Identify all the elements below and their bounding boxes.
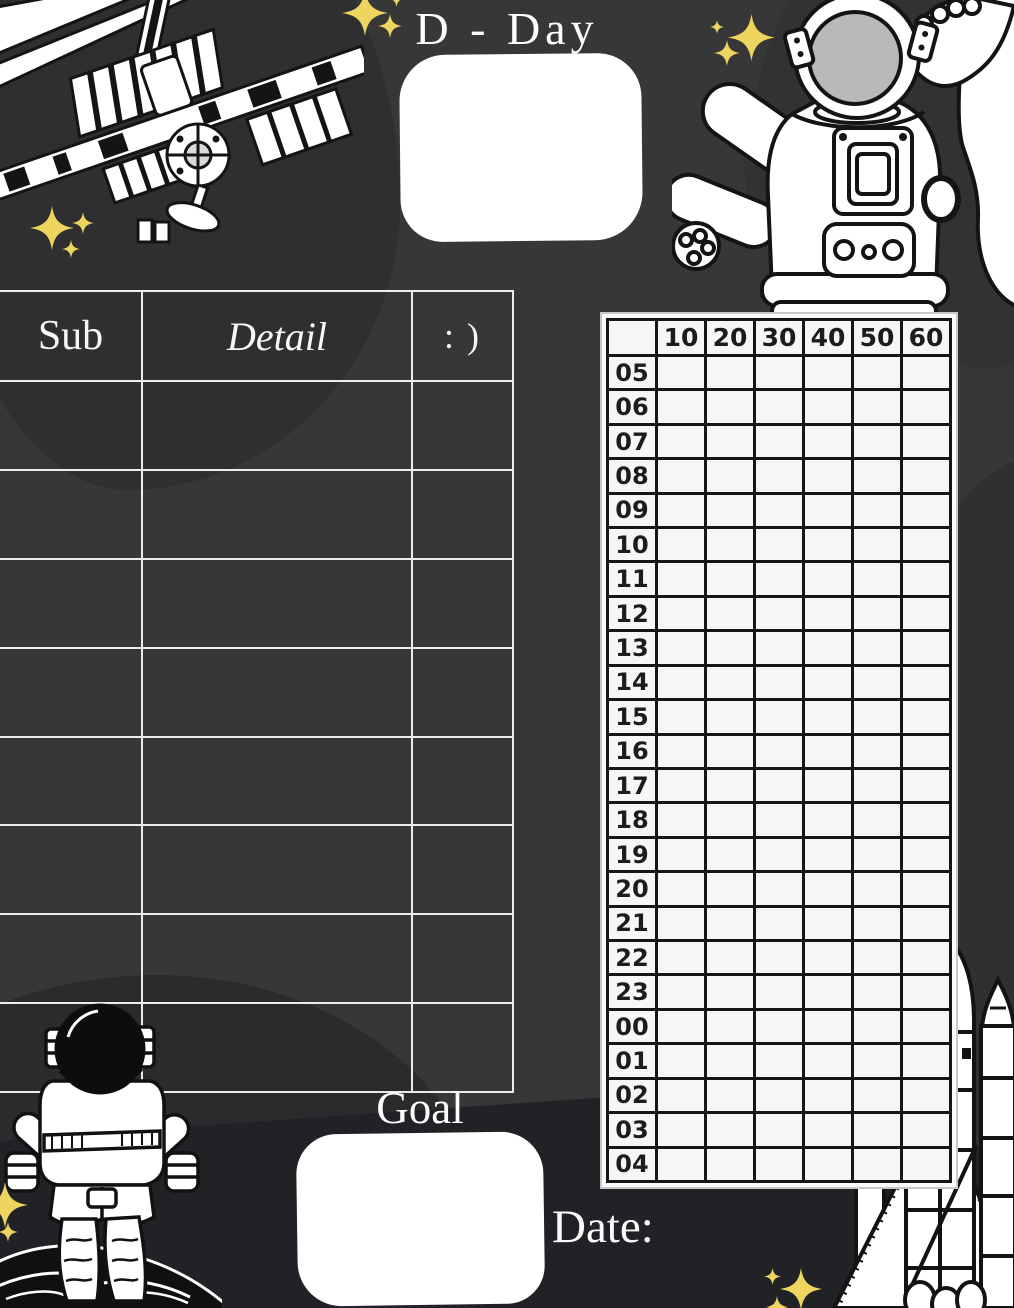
subject-table-cell[interactable] [0,649,143,738]
time-grid-cell[interactable] [658,1114,704,1145]
time-grid-cell[interactable] [658,908,704,939]
time-grid-cell[interactable] [854,942,900,973]
date-label: Date: [552,1200,654,1254]
time-grid-hour-label: 18 [609,804,655,835]
time-grid-cell[interactable] [658,804,704,835]
time-grid-cell[interactable] [903,908,949,939]
time-grid-cell[interactable] [854,1011,900,1042]
time-grid-hour-label: 22 [609,942,655,973]
time-grid-hour-label: 15 [609,701,655,732]
time-grid-minute-header: 30 [756,321,802,354]
time-grid-cell[interactable] [903,804,949,835]
time-grid-cell[interactable] [854,667,900,698]
time-grid-cell[interactable] [707,1045,753,1076]
time-grid-cell[interactable] [707,976,753,1007]
time-grid-cell[interactable] [903,770,949,801]
time-grid-cell[interactable] [854,460,900,491]
time-grid-cell[interactable] [805,1011,851,1042]
subject-table-cell[interactable] [143,471,413,560]
time-grid-hour-label: 10 [609,529,655,560]
time-grid-cell[interactable] [756,632,802,663]
time-grid-cell[interactable] [756,976,802,1007]
time-grid-cell[interactable] [658,701,704,732]
subject-table-cell[interactable] [413,471,514,560]
time-grid-cell[interactable] [903,357,949,388]
subject-table-header-0: Sub [0,292,143,382]
time-grid-cell[interactable] [756,908,802,939]
time-grid-minute-header: 10 [658,321,704,354]
time-grid-cell[interactable] [805,426,851,457]
time-grid-cell[interactable] [756,1080,802,1111]
time-grid-hour-label: 11 [609,563,655,594]
time-grid-cell[interactable] [756,495,802,526]
time-grid-cell[interactable] [658,736,704,767]
time-grid-hour-label: 14 [609,667,655,698]
time-grid-cell[interactable] [805,976,851,1007]
time-grid-cell[interactable] [854,357,900,388]
time-grid-cell[interactable] [805,1114,851,1145]
time-grid-cell[interactable] [707,495,753,526]
time-grid-cell[interactable] [903,495,949,526]
time-grid-cell[interactable] [658,667,704,698]
time-grid-cell[interactable] [658,563,704,594]
time-grid-cell[interactable] [658,976,704,1007]
time-grid-cell[interactable] [707,873,753,904]
time-grid-cell[interactable] [805,873,851,904]
time-grid-cell[interactable] [805,632,851,663]
time-grid-cell[interactable] [707,563,753,594]
time-grid-cell[interactable] [903,839,949,870]
time-grid-hour-label: 21 [609,908,655,939]
time-grid-cell[interactable] [854,1149,900,1180]
time-grid-cell[interactable] [854,804,900,835]
time-grid-cell[interactable] [903,1114,949,1145]
subject-table-header-1: Detail [143,292,413,382]
subject-table-cell[interactable] [0,738,143,827]
time-grid-cell[interactable] [805,563,851,594]
subject-table-cell[interactable] [413,649,514,738]
page-title: D - Day [0,2,1014,55]
time-grid-cell[interactable] [756,701,802,732]
subject-table-cell[interactable] [413,826,514,915]
subject-table-cell[interactable] [0,915,143,1004]
time-grid-panel: 1020304050600506070809101112131415161718… [600,312,958,1189]
planner-page: D - Day SubDetail: ) [0,0,1014,1308]
time-grid-cell[interactable] [707,1149,753,1180]
time-grid-cell[interactable] [756,529,802,560]
time-grid-cell[interactable] [903,1045,949,1076]
time-grid-cell[interactable] [707,908,753,939]
time-grid-cell[interactable] [854,873,900,904]
time-grid-cell[interactable] [756,426,802,457]
time-grid-cell[interactable] [854,701,900,732]
time-grid-cell[interactable] [707,598,753,629]
time-grid-cell[interactable] [707,632,753,663]
time-grid-cell[interactable] [805,736,851,767]
time-grid-cell[interactable] [756,736,802,767]
time-grid-cell[interactable] [707,460,753,491]
time-grid-hour-label: 00 [609,1011,655,1042]
time-grid-hour-label: 06 [609,391,655,422]
time-grid-cell[interactable] [805,701,851,732]
time-grid-cell[interactable] [805,598,851,629]
time-grid-cell[interactable] [805,460,851,491]
time-grid-cell[interactable] [805,495,851,526]
time-grid-cell[interactable] [707,529,753,560]
time-grid-cell[interactable] [756,1011,802,1042]
time-grid-hour-label: 02 [609,1080,655,1111]
time-grid-cell[interactable] [854,1114,900,1145]
time-grid-cell[interactable] [805,1149,851,1180]
time-grid-cell[interactable] [756,942,802,973]
subject-table-cell[interactable] [0,382,143,471]
time-grid-cell[interactable] [903,460,949,491]
time-grid-cell[interactable] [854,976,900,1007]
subject-table-cell[interactable] [143,738,413,827]
time-grid-cell[interactable] [854,598,900,629]
time-grid-table: 1020304050600506070809101112131415161718… [606,318,952,1183]
subject-table-cell[interactable] [0,471,143,560]
time-grid-cell[interactable] [658,839,704,870]
time-grid-cell[interactable] [707,1011,753,1042]
subject-table-cell[interactable] [413,738,514,827]
time-grid-cell[interactable] [903,976,949,1007]
time-grid-cell[interactable] [854,529,900,560]
time-grid-cell[interactable] [903,1011,949,1042]
time-grid-hour-label: 13 [609,632,655,663]
time-grid-cell[interactable] [805,667,851,698]
time-grid-hour-label: 19 [609,839,655,870]
time-grid-cell[interactable] [854,391,900,422]
subject-table-cell[interactable] [143,382,413,471]
time-grid-cell[interactable] [756,563,802,594]
time-grid-cell[interactable] [756,667,802,698]
time-grid-hour-label: 16 [609,736,655,767]
time-grid-cell[interactable] [805,529,851,560]
subject-table-cell[interactable] [0,1004,143,1093]
time-grid-cell[interactable] [854,563,900,594]
time-grid-cell[interactable] [903,701,949,732]
time-grid-cell[interactable] [658,357,704,388]
time-grid-cell[interactable] [903,942,949,973]
sparkle-icon [338,0,410,50]
time-grid-cell[interactable] [707,391,753,422]
time-grid-cell[interactable] [854,908,900,939]
time-grid-cell[interactable] [903,563,949,594]
time-grid-cell[interactable] [854,495,900,526]
time-grid-cell[interactable] [903,667,949,698]
time-grid-cell[interactable] [658,529,704,560]
time-grid-cell[interactable] [756,770,802,801]
time-grid-cell[interactable] [903,632,949,663]
time-grid-cell[interactable] [903,426,949,457]
sparkle-icon [706,12,782,70]
time-grid-cell[interactable] [805,839,851,870]
subject-table: SubDetail: ) [0,290,514,1093]
time-grid-cell[interactable] [707,701,753,732]
time-grid-cell[interactable] [756,804,802,835]
time-grid-cell[interactable] [658,1011,704,1042]
time-grid-hour-label: 17 [609,770,655,801]
time-grid-hour-label: 12 [609,598,655,629]
time-grid-cell[interactable] [756,873,802,904]
time-grid-cell[interactable] [707,736,753,767]
time-grid-cell[interactable] [658,770,704,801]
subject-table-cell[interactable] [143,826,413,915]
time-grid-cell[interactable] [658,495,704,526]
time-grid-hour-label: 08 [609,460,655,491]
time-grid-cell[interactable] [854,770,900,801]
time-grid-minute-header: 50 [854,321,900,354]
dday-input-box[interactable] [399,53,643,243]
subject-table-cell[interactable] [143,560,413,649]
time-grid-cell[interactable] [707,839,753,870]
time-grid-cell[interactable] [707,1080,753,1111]
sparkle-icon [756,1262,830,1308]
time-grid-minute-header: 20 [707,321,753,354]
time-grid-cell[interactable] [707,357,753,388]
time-grid-hour-label: 23 [609,976,655,1007]
subject-table-cell[interactable] [143,915,413,1004]
time-grid-cell[interactable] [756,1114,802,1145]
time-grid-cell[interactable] [903,1149,949,1180]
time-grid-cell[interactable] [756,460,802,491]
subject-table-cell[interactable] [413,382,514,471]
time-grid-cell[interactable] [756,1045,802,1076]
time-grid-hour-label: 09 [609,495,655,526]
time-grid-cell[interactable] [756,357,802,388]
subject-table-cell[interactable] [413,915,514,1004]
time-grid-hour-label: 03 [609,1114,655,1145]
time-grid-cell[interactable] [658,598,704,629]
time-grid-cell[interactable] [756,1149,802,1180]
time-grid-cell[interactable] [805,770,851,801]
time-grid-cell[interactable] [903,736,949,767]
time-grid-cell[interactable] [756,391,802,422]
time-grid-minute-header: 40 [805,321,851,354]
time-grid-hour-label: 20 [609,873,655,904]
time-grid-cell[interactable] [756,598,802,629]
time-grid-cell[interactable] [854,736,900,767]
time-grid-cell[interactable] [707,667,753,698]
time-grid-cell[interactable] [707,426,753,457]
time-grid-minute-header: 60 [903,321,949,354]
sparkle-icon [28,200,100,262]
time-grid-cell[interactable] [903,391,949,422]
time-grid-hour-label: 07 [609,426,655,457]
time-grid-cell[interactable] [805,804,851,835]
time-grid-corner-cell [609,321,655,354]
time-grid-cell[interactable] [658,632,704,663]
time-grid-cell[interactable] [658,873,704,904]
time-grid-cell[interactable] [854,426,900,457]
sparkle-icon [0,1178,46,1244]
time-grid-cell[interactable] [658,391,704,422]
goal-label: Goal [300,1082,540,1134]
subject-table-header-2: : ) [413,292,514,382]
time-grid-cell[interactable] [854,839,900,870]
time-grid-cell[interactable] [805,942,851,973]
time-grid-cell[interactable] [903,598,949,629]
time-grid-cell[interactable] [854,1045,900,1076]
subject-table-cell[interactable] [413,1004,514,1093]
time-grid-cell[interactable] [903,1080,949,1111]
subject-table-cell[interactable] [413,560,514,649]
time-grid-cell[interactable] [658,942,704,973]
time-grid-cell[interactable] [707,942,753,973]
time-grid-cell[interactable] [805,391,851,422]
time-grid-cell[interactable] [805,908,851,939]
time-grid-hour-label: 01 [609,1045,655,1076]
subject-table-cell[interactable] [0,560,143,649]
time-grid-cell[interactable] [854,632,900,663]
time-grid-cell[interactable] [658,1149,704,1180]
time-grid-cell[interactable] [707,1114,753,1145]
time-grid-cell[interactable] [658,1080,704,1111]
time-grid-cell[interactable] [707,770,753,801]
subject-table-cell[interactable] [143,1004,413,1093]
time-grid-cell[interactable] [854,1080,900,1111]
time-grid-cell[interactable] [903,873,949,904]
time-grid-cell[interactable] [903,529,949,560]
time-grid-cell[interactable] [658,1045,704,1076]
time-grid-cell[interactable] [658,426,704,457]
time-grid-hour-label: 05 [609,357,655,388]
subject-table-cell[interactable] [143,649,413,738]
time-grid-cell[interactable] [756,839,802,870]
time-grid-cell[interactable] [805,1045,851,1076]
time-grid-cell[interactable] [805,1080,851,1111]
time-grid-cell[interactable] [805,357,851,388]
time-grid-hour-label: 04 [609,1149,655,1180]
time-grid-cell[interactable] [658,460,704,491]
time-grid-cell[interactable] [707,804,753,835]
goal-input-box[interactable] [296,1131,545,1306]
subject-table-cell[interactable] [0,826,143,915]
